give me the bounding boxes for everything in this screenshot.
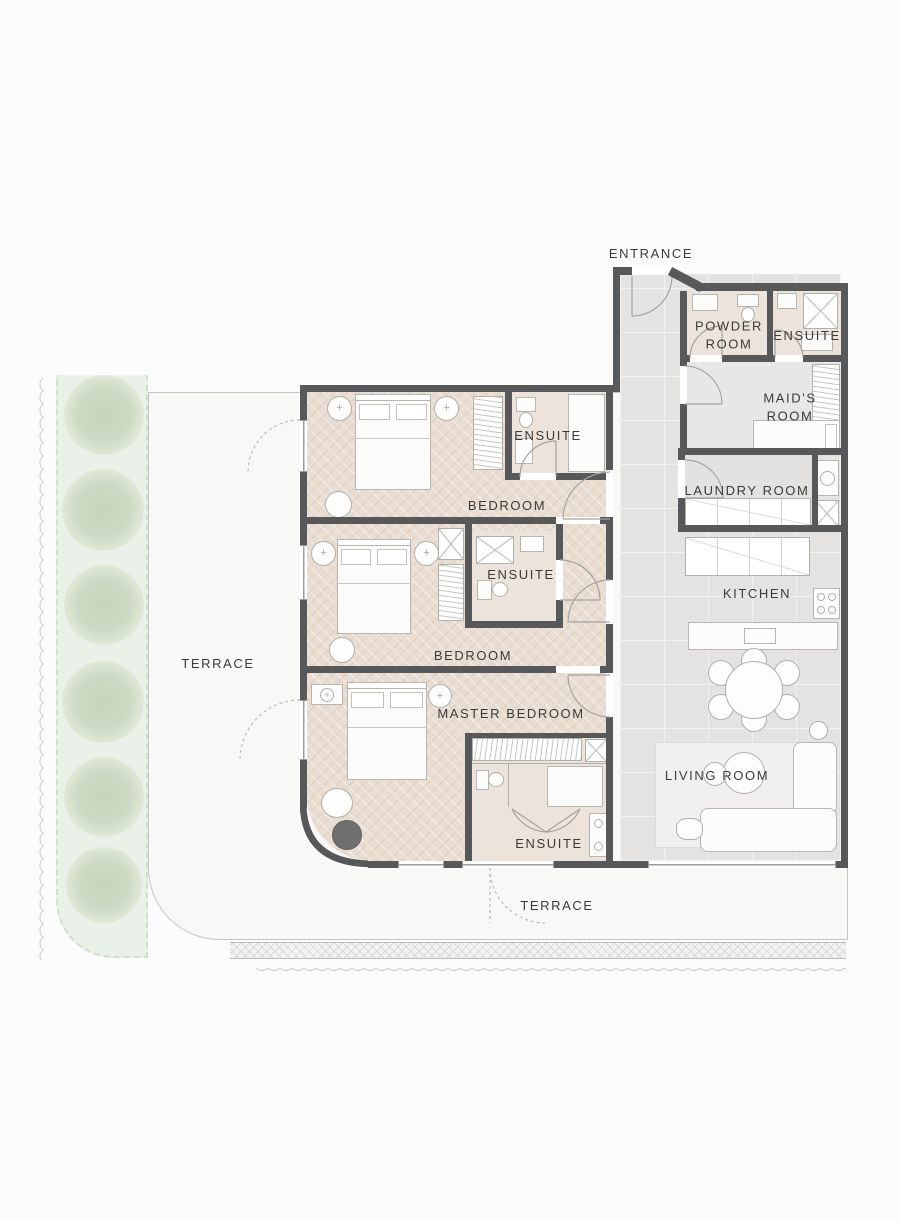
label-kitchen: KITCHEN xyxy=(723,585,791,603)
floor-plan: + + + + + + xyxy=(0,0,900,1221)
curved-wall xyxy=(303,806,368,864)
label-maids-room: MAID'S ROOM xyxy=(748,389,833,424)
door-arc xyxy=(684,366,722,404)
label-terrace-bottom: TERRACE xyxy=(520,897,593,915)
terrace-door-arc xyxy=(248,420,300,472)
door-leaf xyxy=(546,809,580,832)
door-arc xyxy=(568,580,610,622)
label-laundry-room: LAUNDRY ROOM xyxy=(685,482,810,500)
label-living-room: LIVING ROOM xyxy=(665,767,769,785)
door-arc xyxy=(560,560,600,600)
label-bedroom2: BEDROOM xyxy=(434,647,512,665)
label-ensuite-bedroom1: ENSUITE xyxy=(514,427,582,445)
door-arc xyxy=(563,472,610,519)
label-ensuite-top: ENSUITE xyxy=(773,327,841,345)
label-powder-room: POWDER ROOM xyxy=(682,317,777,352)
label-terrace-left: TERRACE xyxy=(181,655,254,673)
entry-diagonal-wall xyxy=(670,271,702,288)
label-master-bedroom: MASTER BEDROOM xyxy=(437,705,584,723)
label-bedroom1: BEDROOM xyxy=(468,497,546,515)
door-arc xyxy=(632,276,672,316)
terrace-door-arc xyxy=(240,700,300,760)
door-swing-layer xyxy=(0,0,900,1221)
door-leaf xyxy=(512,809,546,832)
label-ensuite-bedroom2: ENSUITE xyxy=(487,566,555,584)
label-entrance: ENTRANCE xyxy=(609,245,693,263)
label-ensuite-master: ENSUITE xyxy=(515,835,583,853)
door-arc xyxy=(520,441,556,477)
